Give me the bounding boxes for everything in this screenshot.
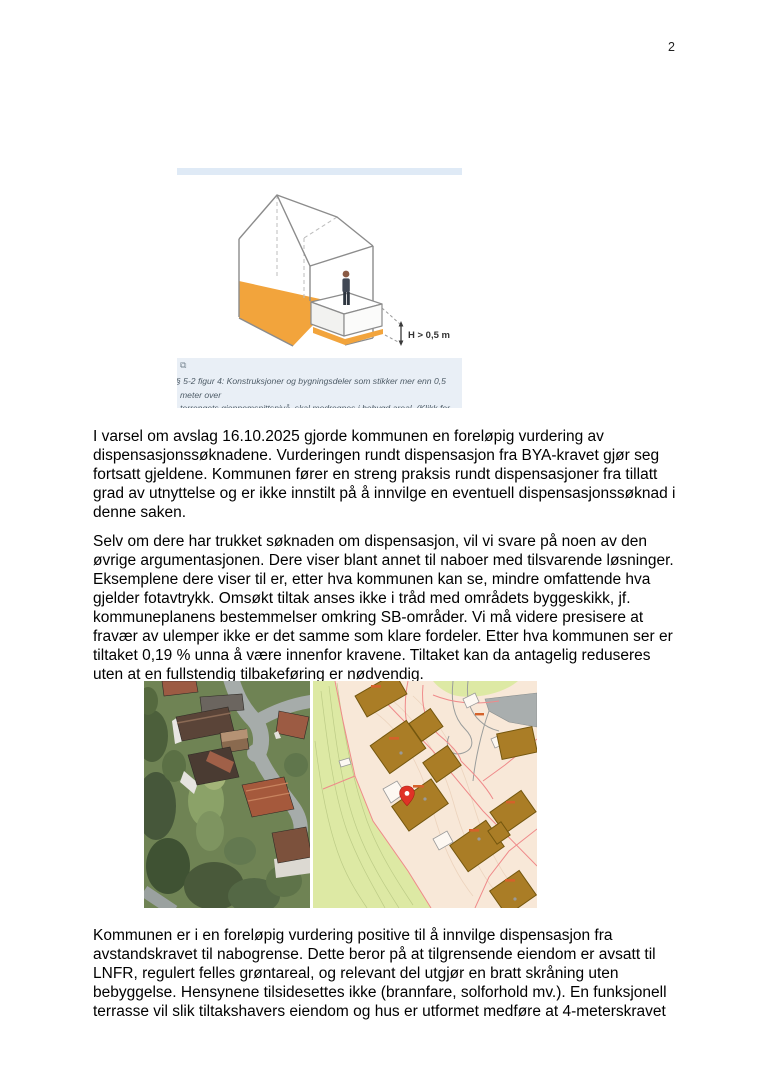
figure-top-bar (177, 168, 462, 175)
figure-caption-panel: ⧉ § 5-2 figur 4: Konstruksjoner og bygni… (177, 358, 462, 408)
document-page: 2 (0, 0, 764, 1080)
bya-house-illustration[interactable]: H > 0,5 m (177, 175, 462, 358)
aerial-photo-image (144, 681, 310, 908)
cadastral-map-image (313, 681, 537, 908)
road-culdesac (247, 744, 265, 762)
house-diagram-svg: H > 0,5 m (177, 175, 462, 358)
paragraph-preliminary-assessment: I varsel om avslag 16.10.2025 gjorde kom… (93, 427, 681, 522)
terrace-box (311, 293, 382, 336)
hidden-edges (277, 195, 337, 299)
figure-block: H > 0,5 m ⧉ § 5-2 figur 4: Konstruksjone… (177, 168, 462, 408)
measurement-guides (382, 308, 403, 346)
paragraph-distance-dispensation: Kommunen er i en foreløpig vurdering pos… (93, 926, 681, 1021)
page-number: 2 (668, 40, 675, 54)
measurement-label: H > 0,5 m (408, 330, 450, 341)
person-icon (342, 271, 349, 305)
expand-icon[interactable]: ⧉ (180, 361, 186, 370)
paragraph-argumentation-response: Selv om dere har trukket søknaden om dis… (93, 532, 681, 684)
figure-caption: § 5-2 figur 4: Konstruksjoner og bygning… (180, 375, 460, 408)
